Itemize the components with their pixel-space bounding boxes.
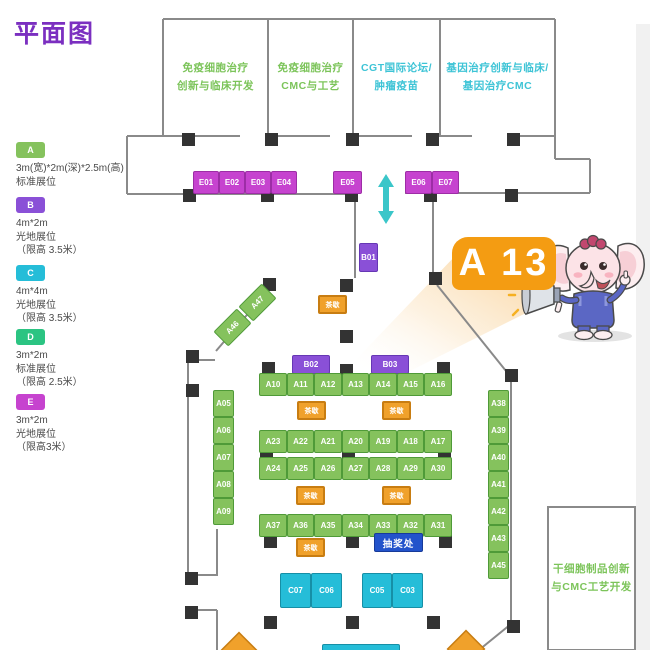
- legend-line: （限高 3.5米）: [16, 244, 136, 258]
- booth-A15: A15: [397, 373, 424, 396]
- legend-line: 4m*2m: [16, 217, 136, 231]
- booth-A37: A37: [259, 514, 287, 537]
- booth-A20: A20: [342, 430, 369, 453]
- room-label-line: 免疫细胞治疗: [177, 60, 254, 78]
- booth-A06: A06: [213, 417, 234, 444]
- room-label-line: 免疫细胞治疗: [278, 60, 344, 78]
- legend-line: 光地展位: [16, 428, 136, 442]
- booth-A16: A16: [424, 373, 452, 396]
- room-label-line: 创新与临床开发: [177, 78, 254, 96]
- booth-A29: A29: [397, 457, 424, 480]
- legend-line: 光地展位: [16, 231, 136, 245]
- booth-A24: A24: [259, 457, 287, 480]
- booth-A38: A38: [488, 390, 509, 417]
- booth-茶歇: 茶歇: [318, 295, 347, 314]
- legend-swatch-E: E: [16, 394, 45, 410]
- booth-A35: A35: [314, 514, 342, 537]
- booth-E07: E07: [432, 171, 459, 194]
- booth-E04: E04: [271, 171, 297, 194]
- legend-line: 3m*2m: [16, 349, 136, 363]
- booth-A25: A25: [287, 457, 314, 480]
- room-label-line: 基因治疗创新与临床/: [446, 60, 548, 78]
- room-immune-clinical: 免疫细胞治疗创新与临床开发: [163, 19, 268, 136]
- booth-block: [322, 644, 400, 650]
- booth-A08: A08: [213, 471, 234, 498]
- booth-A31: A31: [424, 514, 452, 537]
- legend-text: 3m*2m光地展位（限高3米）: [16, 414, 136, 455]
- room-gene-therapy: 基因治疗创新与临床/基因治疗CMC: [440, 19, 555, 136]
- booth-A28: A28: [369, 457, 397, 480]
- booth-A34: A34: [342, 514, 369, 537]
- booth-A30: A30: [424, 457, 452, 480]
- legend-item-D: D3m*2m标准展位（限高 2.5米）: [16, 329, 136, 390]
- booth-抽奖处: 抽奖处: [374, 533, 423, 552]
- room-label-line: 基因治疗CMC: [446, 78, 548, 96]
- legend-line: 标准展位: [16, 176, 136, 190]
- legend-swatch-B: B: [16, 197, 45, 213]
- legend-line: 3m(宽)*2m(深)*2.5m(高): [16, 162, 136, 176]
- booth-B01: B01: [359, 243, 378, 272]
- legend-line: 光地展位: [16, 299, 136, 313]
- booth-A43: A43: [488, 525, 509, 552]
- legend-item-B: B4m*2m光地展位（限高 3.5米）: [16, 197, 136, 258]
- booth-A40: A40: [488, 444, 509, 471]
- floor-plan: 平面图 A3m(宽)*2m(深)*2.5m(高)标准展位B4m*2m光地展位（限…: [0, 0, 650, 650]
- booth-A12: A12: [314, 373, 342, 396]
- legend-line: 标准展位: [16, 363, 136, 377]
- booth-A27: A27: [342, 457, 369, 480]
- legend-line: （限高3米）: [16, 441, 136, 455]
- room-stemcell-cmc: 干细胞制品创新与CMC工艺开发: [548, 507, 635, 650]
- booth-B03: B03: [371, 355, 409, 374]
- legend-line: （限高 3.5米）: [16, 312, 136, 326]
- legend-line: 3m*2m: [16, 414, 136, 428]
- legend-line: （限高 2.5米）: [16, 376, 136, 390]
- booth-茶歇: 茶歇: [297, 401, 326, 420]
- booth-A09: A09: [213, 498, 234, 525]
- booth-C07: C07: [280, 573, 311, 608]
- legend-item-A: A3m(宽)*2m(深)*2.5m(高)标准展位: [16, 142, 136, 189]
- booth-A21: A21: [314, 430, 342, 453]
- booth-E05: E05: [333, 171, 362, 194]
- booth-A07: A07: [213, 444, 234, 471]
- legend-line: 4m*4m: [16, 285, 136, 299]
- booth-A11: A11: [287, 373, 314, 396]
- room-cgt-forum: CGT国际论坛/肿瘤疫苗: [353, 19, 440, 136]
- booth-E06: E06: [405, 171, 432, 194]
- room-label-line: 干细胞制品创新: [551, 561, 631, 579]
- legend-swatch-D: D: [16, 329, 45, 345]
- legend-text: 4m*2m光地展位（限高 3.5米）: [16, 217, 136, 258]
- room-label-line: CGT国际论坛/: [361, 60, 432, 78]
- booth-A42: A42: [488, 498, 509, 525]
- booth-A14: A14: [369, 373, 397, 396]
- booth-A13: A13: [342, 373, 369, 396]
- booth-B02: B02: [292, 355, 330, 374]
- legend-item-C: C4m*4m光地展位（限高 3.5米）: [16, 265, 136, 326]
- page-title: 平面图: [14, 14, 95, 50]
- room-label-line: 肿瘤疫苗: [361, 78, 432, 96]
- booth-A23: A23: [259, 430, 287, 453]
- booth-A41: A41: [488, 471, 509, 498]
- legend-text: 4m*4m光地展位（限高 3.5米）: [16, 285, 136, 326]
- booth-茶歇: 茶歇: [296, 538, 325, 557]
- room-label-line: 与CMC工艺开发: [551, 579, 631, 597]
- booth-A17: A17: [424, 430, 452, 453]
- legend-swatch-A: A: [16, 142, 45, 158]
- booth-茶歇: 茶歇: [382, 486, 411, 505]
- room-label-line: CMC与工艺: [278, 78, 344, 96]
- booth-C06: C06: [311, 573, 342, 608]
- booth-A10: A10: [259, 373, 287, 396]
- booth-A45: A45: [488, 552, 509, 579]
- a13-callout-badge: A 13: [452, 237, 556, 290]
- booth-茶歇: 茶歇: [382, 401, 411, 420]
- booth-A19: A19: [369, 430, 397, 453]
- booth-E02: E02: [219, 171, 245, 194]
- room-immune-cmc: 免疫细胞治疗CMC与工艺: [268, 19, 353, 136]
- legend-item-E: E3m*2m光地展位（限高3米）: [16, 394, 136, 455]
- booth-A05: A05: [213, 390, 234, 417]
- booth-A22: A22: [287, 430, 314, 453]
- booth-A39: A39: [488, 417, 509, 444]
- booth-E01: E01: [193, 171, 219, 194]
- booth-E03: E03: [245, 171, 271, 194]
- booth-茶歇: 茶歇: [296, 486, 325, 505]
- booth-C05: C05: [362, 573, 392, 608]
- legend-swatch-C: C: [16, 265, 45, 281]
- booth-A36: A36: [287, 514, 314, 537]
- entrance-arrow-icon: [378, 174, 394, 224]
- legend-text: 3m(宽)*2m(深)*2.5m(高)标准展位: [16, 162, 136, 189]
- legend-text: 3m*2m标准展位（限高 2.5米）: [16, 349, 136, 390]
- booth-A26: A26: [314, 457, 342, 480]
- booth-C03: C03: [392, 573, 423, 608]
- booth-A18: A18: [397, 430, 424, 453]
